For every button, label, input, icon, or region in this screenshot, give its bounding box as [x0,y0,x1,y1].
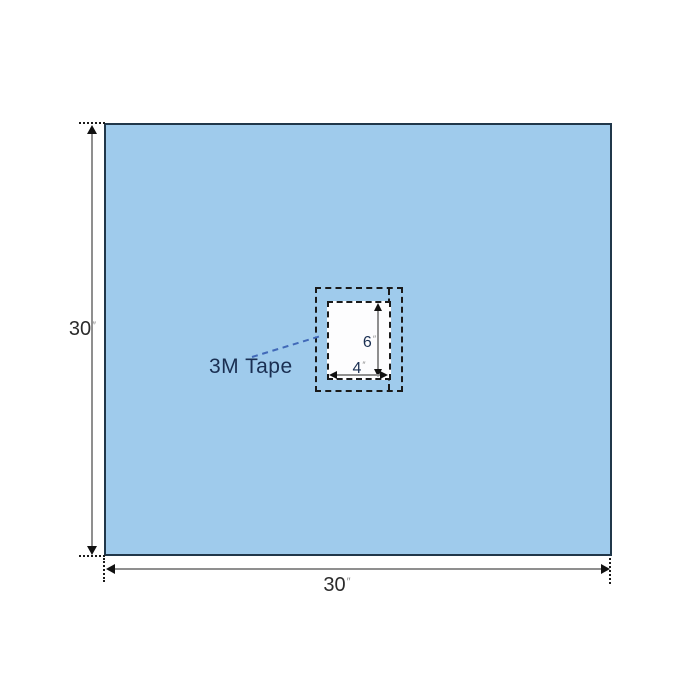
arrowhead-left-icon [106,564,115,574]
tape-label: 3M Tape [209,356,293,377]
fenestration-width-label: 4″ [345,357,373,377]
arrowhead-down-icon [87,546,97,555]
arrowhead-up-icon [87,125,97,134]
drape-width-unit: ″ [347,576,351,588]
fenestration-arrowhead-right-icon [380,371,388,379]
arrowhead-right-icon [601,564,610,574]
width-dimension-line [114,568,602,570]
fenestration-width-value: 4 [352,360,361,377]
fenestration-height-dimension-line [377,306,379,372]
extension-line-bottom-left-vertical [103,558,105,582]
fenestration-height-unit: ″ [373,334,376,344]
drape-width-label: 30″ [315,572,359,595]
extension-line-bottom-left [79,555,105,557]
drape-height-label: 30″ [52,316,96,339]
fenestration-width-unit: ″ [362,360,365,370]
surgical-drape-diagram: 30″ 30″ 6″ 4″ 3M Tape [0,0,700,700]
fenestration-arrowhead-up-icon [374,303,382,311]
fenestration-height-value: 6 [363,334,372,351]
drape-height-unit: ″ [92,320,96,332]
drape-width-value: 30 [323,574,345,596]
fenestration-arrowhead-left-icon [329,371,337,379]
fenestration-height-label: 6″ [348,331,376,351]
height-dimension-line [91,132,93,548]
drape-height-value: 30 [69,318,91,340]
extension-line-top-left [79,122,105,124]
